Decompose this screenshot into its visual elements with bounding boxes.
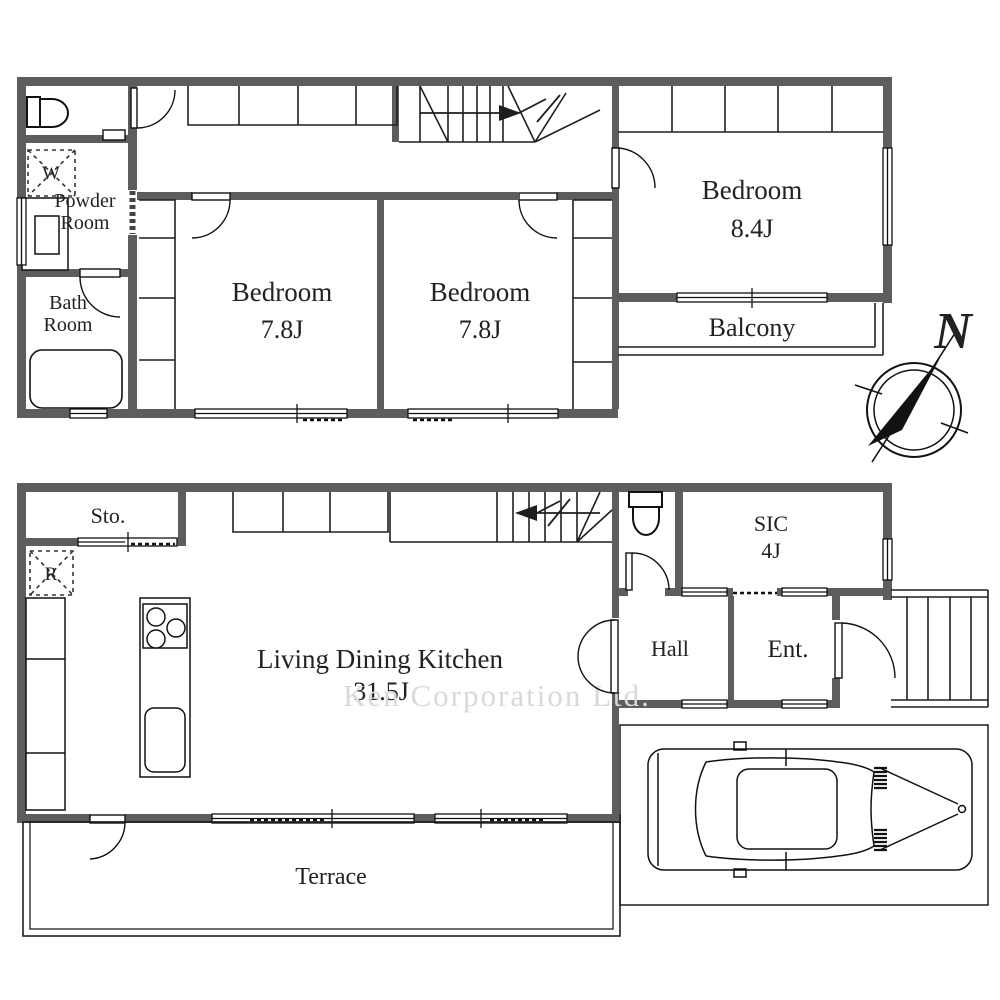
entrance-steps <box>891 590 988 707</box>
burner <box>147 608 165 626</box>
staircase-1f <box>390 492 612 542</box>
washer-label: W <box>42 163 60 184</box>
staircase-2f <box>399 86 600 142</box>
kitchen <box>26 598 190 810</box>
closet-lines-1f <box>233 492 388 532</box>
arrow-head-1f <box>515 505 537 521</box>
terrace: Terrace <box>23 822 620 936</box>
balcony-label: Balcony <box>709 313 796 342</box>
watermark: Ken Corporation Ltd. <box>343 678 651 713</box>
burner <box>147 630 165 648</box>
front-door <box>835 623 895 678</box>
powder-room-label-2: Room <box>61 212 110 234</box>
storage-label: Sto. <box>91 503 126 528</box>
bedroom-mid-size: 7.8J <box>459 315 502 344</box>
fridge-label: R <box>45 564 58 585</box>
north-label: N <box>933 303 974 360</box>
toilet-bowl <box>633 507 659 535</box>
bedroom-mid-label: Bedroom <box>430 277 531 307</box>
entrance-label: Ent. <box>768 636 809 663</box>
second-floor: W Powder Room Bath Room Bedroom 7.8J <box>17 77 892 423</box>
compass-outer-ring <box>867 363 961 457</box>
bedroom-main-label: Bedroom <box>702 175 803 205</box>
bath-room: Bath Room <box>30 292 122 408</box>
sic-room: SIC 4J <box>733 511 788 593</box>
closet-lines-2f <box>139 86 883 409</box>
balcony: Balcony <box>618 303 883 355</box>
floor-plan: W Powder Room Bath Room Bedroom 7.8J <box>0 0 1000 1000</box>
terrace-label: Terrace <box>295 864 367 890</box>
toilet-bowl <box>40 99 68 127</box>
toilet-door-1f <box>626 553 669 590</box>
toilet-tank <box>629 492 662 507</box>
bathtub <box>30 350 122 408</box>
storage-sliding-door <box>78 532 177 552</box>
refrigerator: R <box>30 551 73 595</box>
walls-2f <box>17 77 892 418</box>
toilet-2f <box>27 97 125 140</box>
bedroom-mid: Bedroom 7.8J <box>430 193 557 344</box>
toilet-shelf <box>103 130 125 140</box>
ldk-label: Living Dining Kitchen <box>257 644 503 674</box>
powder-room-label-1: Powder <box>54 190 115 212</box>
sink <box>145 708 185 772</box>
toilet-tank <box>27 97 40 127</box>
bath-room-label-2: Room <box>44 314 93 336</box>
car <box>648 742 972 877</box>
parking <box>620 725 988 905</box>
first-floor: Sto. R Living Dini <box>17 483 988 936</box>
compass: N <box>855 303 974 462</box>
storage-room: Sto. <box>78 503 177 552</box>
bedroom-left: Bedroom 7.8J <box>192 193 332 344</box>
kitchen-counter <box>26 598 65 810</box>
hall-label: Hall <box>651 636 689 661</box>
parking-space <box>620 725 988 905</box>
bedroom-main: Bedroom 8.4J <box>612 148 802 243</box>
burner <box>167 619 185 637</box>
sic-size: 4J <box>761 538 781 563</box>
bedroom-left-size: 7.8J <box>261 315 304 344</box>
bath-room-label-1: Bath <box>49 292 87 314</box>
toilet-door-2f <box>131 88 175 128</box>
toilet-1f <box>629 492 662 535</box>
bedroom-main-size: 8.4J <box>731 214 774 243</box>
sic-label: SIC <box>754 511 788 536</box>
compass-inner-ring <box>874 370 954 450</box>
bedroom-left-label: Bedroom <box>232 277 333 307</box>
